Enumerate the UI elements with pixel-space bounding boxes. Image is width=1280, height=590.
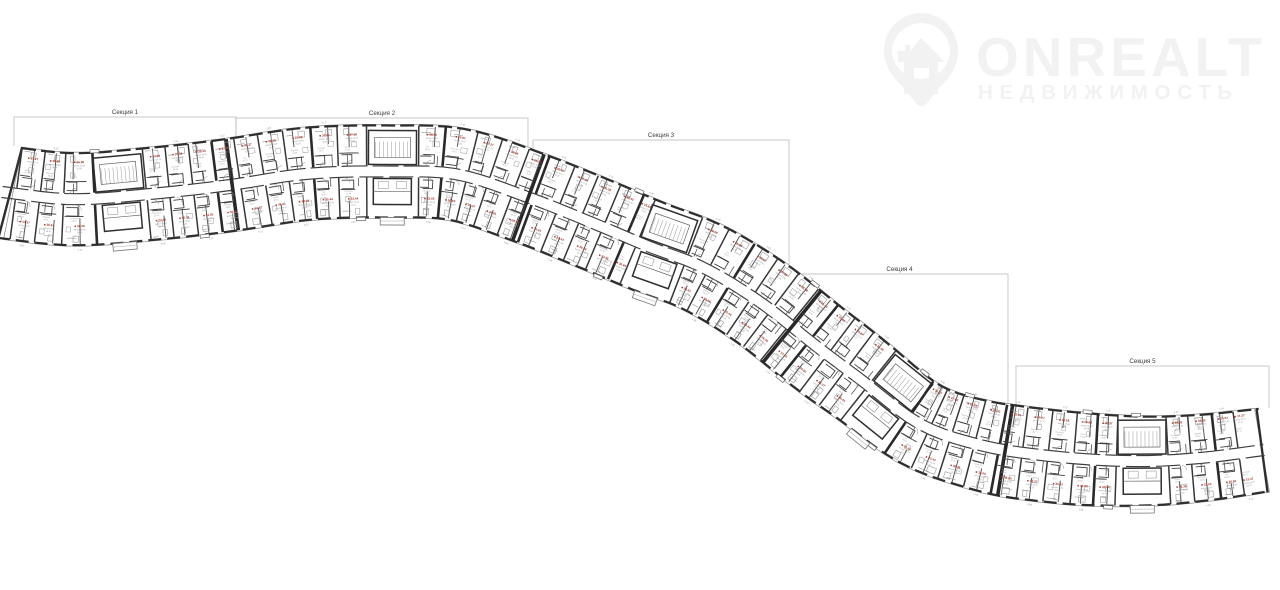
svg-text:3.08: 3.08 — [161, 242, 167, 245]
svg-text:38.08: 38.08 — [72, 221, 78, 223]
svg-text:■ 37.06: ■ 37.06 — [347, 133, 358, 137]
svg-text:25.08: 25.08 — [72, 177, 78, 179]
svg-text:■ 25.08: ■ 25.08 — [74, 160, 85, 164]
svg-text:1.85: 1.85 — [691, 318, 697, 323]
svg-text:жилая 23.44: жилая 23.44 — [347, 202, 360, 204]
svg-text:38.08: 38.08 — [77, 232, 83, 234]
svg-text:Секция 2: Секция 2 — [369, 110, 396, 117]
svg-text:■ 36.36: ■ 36.36 — [1176, 484, 1187, 489]
svg-text:■ 35.44: ■ 35.44 — [1099, 485, 1110, 489]
svg-text:■ 38.08: ■ 38.08 — [1077, 484, 1088, 489]
svg-text:3.08: 3.08 — [1027, 503, 1033, 507]
svg-text:5.12: 5.12 — [461, 226, 467, 230]
svg-text:35.44: 35.44 — [1101, 493, 1107, 495]
svg-text:4.20: 4.20 — [1206, 504, 1212, 507]
svg-text:Секция 3: Секция 3 — [648, 132, 675, 139]
svg-text:■ 36.97: ■ 36.97 — [1102, 421, 1113, 425]
svg-text:5.12: 5.12 — [258, 230, 264, 234]
svg-text:■ 38.08: ■ 38.08 — [74, 224, 85, 228]
svg-text:жилая 25.08: жилая 25.08 — [73, 165, 86, 167]
svg-text:3.08: 3.08 — [561, 155, 567, 160]
svg-text:жилая 38.08: жилая 38.08 — [74, 229, 87, 231]
svg-text:3.08: 3.08 — [426, 221, 431, 224]
svg-text:■ 36.97: ■ 36.97 — [319, 133, 330, 138]
svg-text:3.08: 3.08 — [19, 244, 25, 248]
svg-text:1.43: 1.43 — [920, 476, 926, 481]
svg-text:жилая 37.06: жилая 37.06 — [346, 138, 359, 140]
svg-text:23.44: 23.44 — [351, 205, 357, 207]
svg-text:25.08: 25.08 — [76, 168, 82, 170]
svg-text:5.12: 5.12 — [304, 223, 310, 227]
svg-text:2.15: 2.15 — [1105, 409, 1110, 412]
svg-text:1.43: 1.43 — [1219, 407, 1225, 411]
svg-text:5.12: 5.12 — [321, 121, 326, 124]
svg-text:2.15: 2.15 — [1063, 406, 1069, 410]
svg-text:2.15: 2.15 — [765, 370, 771, 376]
svg-text:4.20: 4.20 — [803, 400, 809, 406]
svg-text:Секция 5: Секция 5 — [1129, 358, 1156, 365]
svg-text:5.12: 5.12 — [592, 277, 598, 282]
svg-text:5.12: 5.12 — [54, 147, 60, 150]
svg-text:Секция 1: Секция 1 — [112, 109, 139, 116]
svg-text:5.12: 5.12 — [1249, 497, 1255, 501]
svg-text:33.55: 33.55 — [426, 205, 432, 207]
svg-text:2.15: 2.15 — [351, 221, 356, 224]
svg-text:38.40: 38.40 — [429, 141, 435, 143]
svg-text:НЕДВИЖИМОСТЬ: НЕДВИЖИМОСТЬ — [978, 81, 1239, 104]
svg-text:36.97: 36.97 — [1104, 429, 1110, 431]
svg-text:3.08: 3.08 — [547, 258, 553, 263]
svg-text:3.08: 3.08 — [1078, 508, 1084, 511]
svg-text:4.20: 4.20 — [460, 123, 466, 127]
svg-text:1.43: 1.43 — [515, 138, 521, 143]
svg-text:4.20: 4.20 — [173, 140, 179, 144]
svg-text:37.06: 37.06 — [349, 141, 355, 143]
svg-text:4.20: 4.20 — [1174, 410, 1180, 413]
svg-text:3.08: 3.08 — [503, 241, 509, 246]
svg-text:Секция 4: Секция 4 — [886, 266, 913, 273]
svg-text:1.43: 1.43 — [973, 493, 979, 497]
svg-text:5.12: 5.12 — [220, 134, 226, 138]
svg-text:■ 35.08: ■ 35.08 — [1172, 420, 1183, 425]
svg-text:3.08: 3.08 — [266, 127, 272, 131]
svg-text:■ 33.55: ■ 33.55 — [424, 196, 435, 200]
svg-text:ONREALT: ONREALT — [976, 26, 1266, 88]
svg-text:2.15: 2.15 — [77, 249, 82, 252]
svg-text:■ 35.44: ■ 35.44 — [322, 197, 333, 202]
svg-text:1.43: 1.43 — [729, 342, 735, 348]
svg-text:2.15: 2.15 — [209, 237, 215, 241]
svg-text:■ 25.08: ■ 25.08 — [1082, 420, 1093, 425]
svg-text:■ 23.44: ■ 23.44 — [348, 197, 359, 201]
svg-text:■ 38.40: ■ 38.40 — [426, 133, 437, 137]
